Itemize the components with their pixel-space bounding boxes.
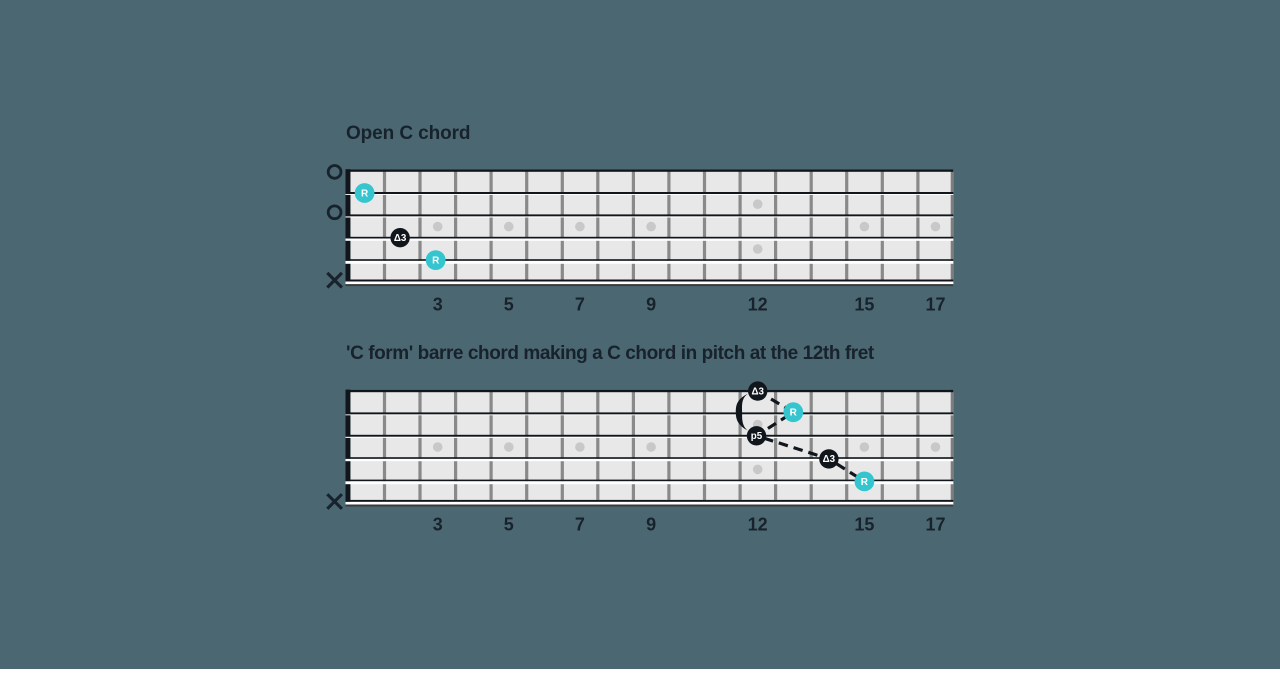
svg-text:3: 3 [433,295,443,315]
svg-text:15: 15 [854,515,874,535]
svg-text:'C form' barre chord making a: 'C form' barre chord making a C chord in… [346,343,875,364]
svg-text:9: 9 [646,515,656,535]
svg-text:R: R [432,256,440,267]
svg-text:Δ3: Δ3 [823,454,836,465]
svg-text:Open C chord: Open C chord [346,123,470,144]
svg-text:R: R [861,477,869,488]
svg-text:3: 3 [433,515,443,535]
svg-text:R: R [790,408,798,419]
svg-text:9: 9 [646,295,656,315]
svg-text:7: 7 [575,295,585,315]
svg-text:5: 5 [504,295,514,315]
svg-text:7: 7 [575,515,585,535]
svg-text:17: 17 [925,515,945,535]
svg-text:Δ3: Δ3 [394,233,407,244]
svg-text:17: 17 [925,295,945,315]
svg-text:p5: p5 [751,431,763,442]
svg-text:R: R [361,188,369,199]
svg-text:5: 5 [504,515,514,535]
svg-text:Δ3: Δ3 [751,386,764,397]
svg-text:12: 12 [748,515,768,535]
svg-text:15: 15 [854,295,874,315]
svg-text:12: 12 [748,295,768,315]
